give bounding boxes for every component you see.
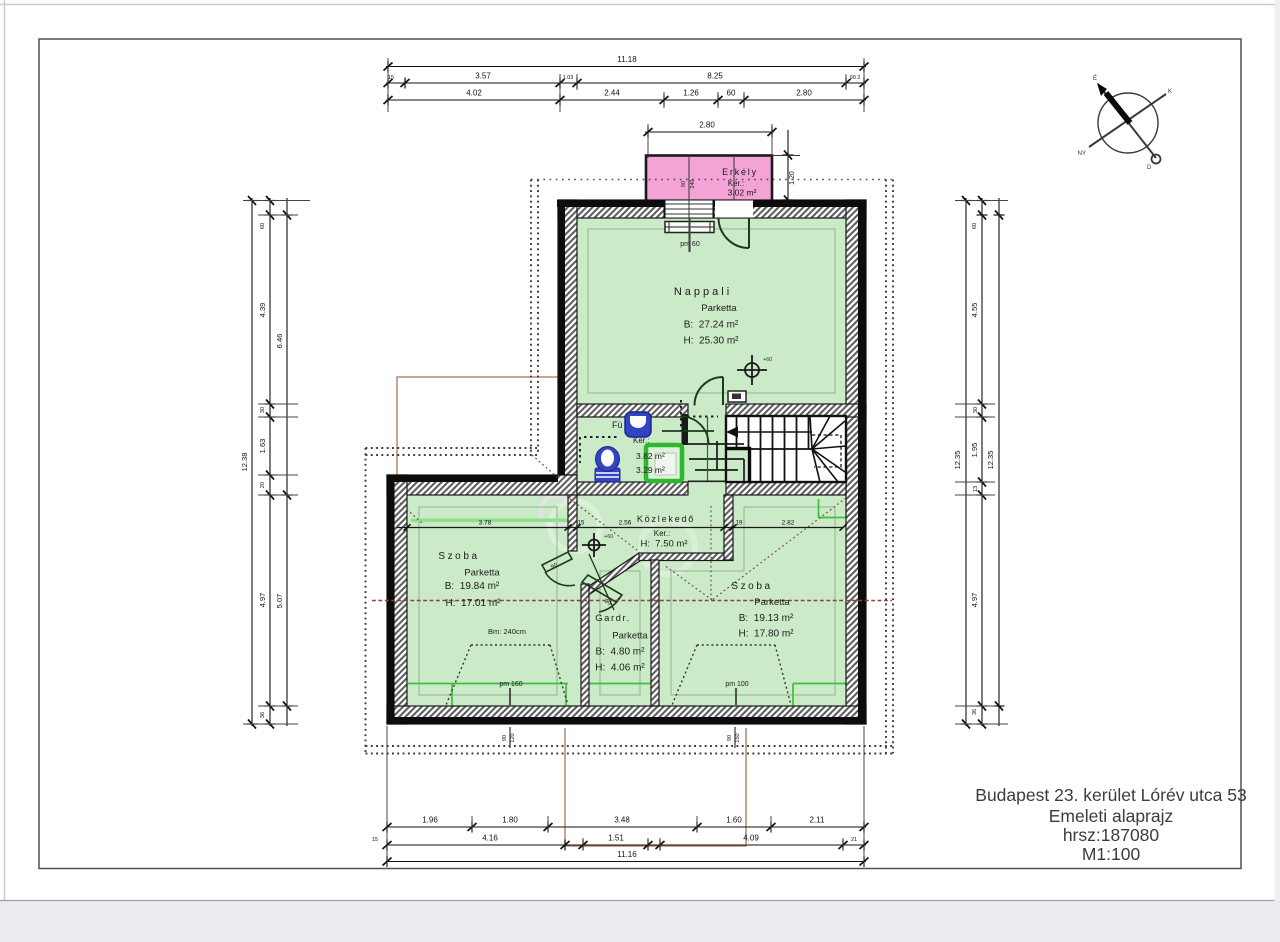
svg-text:150: 150	[735, 733, 741, 742]
svg-text:6.46: 6.46	[275, 334, 284, 349]
svg-text:Parketta: Parketta	[464, 568, 500, 579]
svg-text:15: 15	[578, 521, 585, 527]
svg-text:12.35: 12.35	[986, 451, 995, 470]
svg-text:3.29 m²: 3.29 m²	[636, 465, 665, 475]
svg-text:pm 60: pm 60	[680, 241, 700, 248]
svg-text:3.02 m²: 3.02 m²	[728, 188, 757, 198]
svg-text:60: 60	[972, 223, 978, 229]
svg-text:4.02: 4.02	[466, 89, 482, 98]
svg-text:20: 20	[260, 482, 266, 488]
svg-text:B: 19.13 m²: B: 19.13 m²	[739, 613, 794, 624]
svg-text:60: 60	[727, 89, 736, 98]
svg-text:H: 17.01 m²: H: 17.01 m²	[445, 598, 501, 609]
svg-text:1.03: 1.03	[563, 75, 574, 81]
svg-text:36: 36	[260, 712, 266, 718]
svg-text:B: 4.80 m²: B: 4.80 m²	[596, 647, 646, 658]
svg-text:4.16: 4.16	[482, 834, 498, 843]
svg-text:hrsz:187080: hrsz:187080	[1063, 825, 1160, 845]
svg-text:2.44: 2.44	[604, 89, 620, 98]
svg-text:H: 25.30 m²: H: 25.30 m²	[683, 336, 739, 347]
svg-text:3.78: 3.78	[479, 520, 492, 527]
svg-text:12.35: 12.35	[953, 451, 962, 470]
svg-text:Fü: Fü	[612, 420, 623, 430]
svg-text:15: 15	[388, 75, 394, 81]
svg-text:120: 120	[510, 733, 516, 742]
svg-text:4.39: 4.39	[258, 303, 267, 318]
svg-text:B: 19.84 m²: B: 19.84 m²	[445, 581, 500, 592]
svg-text:Parketta: Parketta	[754, 597, 790, 608]
svg-text:1.26: 1.26	[683, 89, 699, 98]
svg-text:2.82: 2.82	[782, 520, 795, 527]
svg-text:90 2: 90 2	[850, 75, 861, 81]
svg-text:11.18: 11.18	[617, 55, 637, 64]
svg-text:D: D	[1147, 165, 1152, 171]
svg-text:+60: +60	[604, 534, 613, 540]
svg-text:90: 90	[727, 735, 733, 741]
svg-text:pm 100: pm 100	[725, 681, 748, 688]
svg-text:1.60: 1.60	[726, 816, 742, 825]
svg-text:Közlekedő: Közlekedő	[637, 514, 695, 524]
svg-text:19: 19	[736, 521, 743, 527]
svg-text:pm 160: pm 160	[499, 681, 522, 688]
svg-text:Ker.:: Ker.:	[633, 436, 649, 445]
svg-text:4.97: 4.97	[970, 593, 979, 608]
svg-text:240: 240	[690, 179, 696, 188]
svg-text:30: 30	[260, 407, 266, 413]
svg-text:3.82 m²: 3.82 m²	[636, 451, 665, 461]
svg-text:B: 27.24 m²: B: 27.24 m²	[684, 320, 739, 331]
svg-text:90: 90	[681, 181, 687, 187]
svg-text:13: 13	[973, 486, 979, 492]
svg-text:90: 90	[502, 735, 508, 741]
svg-text:Szoba: Szoba	[731, 581, 772, 592]
svg-text:Bm: 240cm: Bm: 240cm	[488, 627, 526, 636]
svg-text:4.97: 4.97	[258, 593, 267, 608]
svg-text:Ker.:: Ker.:	[654, 529, 670, 538]
svg-text:36: 36	[972, 709, 978, 715]
svg-text:H: 4.06 m²: H: 4.06 m²	[595, 663, 645, 674]
svg-text:2.11: 2.11	[810, 816, 826, 825]
svg-text:4.09: 4.09	[743, 834, 759, 843]
svg-text:1.95: 1.95	[970, 443, 979, 458]
svg-text:Emeleti alaprajz: Emeleti alaprajz	[1049, 806, 1174, 826]
svg-text:Parketta: Parketta	[612, 631, 648, 642]
svg-text:1.63: 1.63	[258, 439, 267, 454]
svg-text:NY: NY	[1078, 151, 1086, 157]
svg-text:Erkély: Erkély	[722, 167, 758, 177]
svg-text:12.38: 12.38	[240, 453, 249, 472]
svg-text:Gardr.: Gardr.	[595, 613, 630, 624]
svg-text:+60: +60	[763, 357, 772, 363]
svg-text:11.16: 11.16	[617, 850, 637, 859]
svg-text:15: 15	[372, 837, 378, 843]
svg-text:3.57: 3.57	[475, 72, 491, 81]
svg-text:M1:100: M1:100	[1082, 844, 1141, 864]
svg-text:H: 17.80 m²: H: 17.80 m²	[738, 629, 794, 640]
svg-text:Budapest 23. kerület Lórév utc: Budapest 23. kerület Lórév utca 53	[975, 785, 1246, 805]
svg-text:1.51: 1.51	[608, 834, 624, 843]
svg-text:2.80: 2.80	[699, 121, 715, 130]
svg-text:2.56: 2.56	[619, 520, 632, 527]
svg-text:5.07: 5.07	[275, 594, 284, 609]
svg-text:21: 21	[851, 837, 857, 843]
svg-text:1.96: 1.96	[422, 816, 438, 825]
svg-text:60: 60	[260, 223, 266, 229]
svg-text:H: 7.50 m²: H: 7.50 m²	[641, 539, 688, 550]
svg-text:8.25: 8.25	[707, 72, 723, 81]
svg-text:1.80: 1.80	[502, 816, 518, 825]
svg-text:K: K	[1168, 89, 1172, 95]
svg-text:2.80: 2.80	[796, 89, 812, 98]
svg-text:É: É	[1093, 75, 1097, 82]
svg-text:3.48: 3.48	[614, 816, 630, 825]
svg-text:Szoba: Szoba	[438, 551, 479, 562]
svg-text:Parketta: Parketta	[701, 303, 737, 314]
svg-text:30: 30	[973, 407, 979, 413]
svg-text:1.20: 1.20	[789, 171, 796, 185]
svg-text:4.55: 4.55	[970, 303, 979, 318]
svg-text:Nappali: Nappali	[674, 286, 732, 298]
